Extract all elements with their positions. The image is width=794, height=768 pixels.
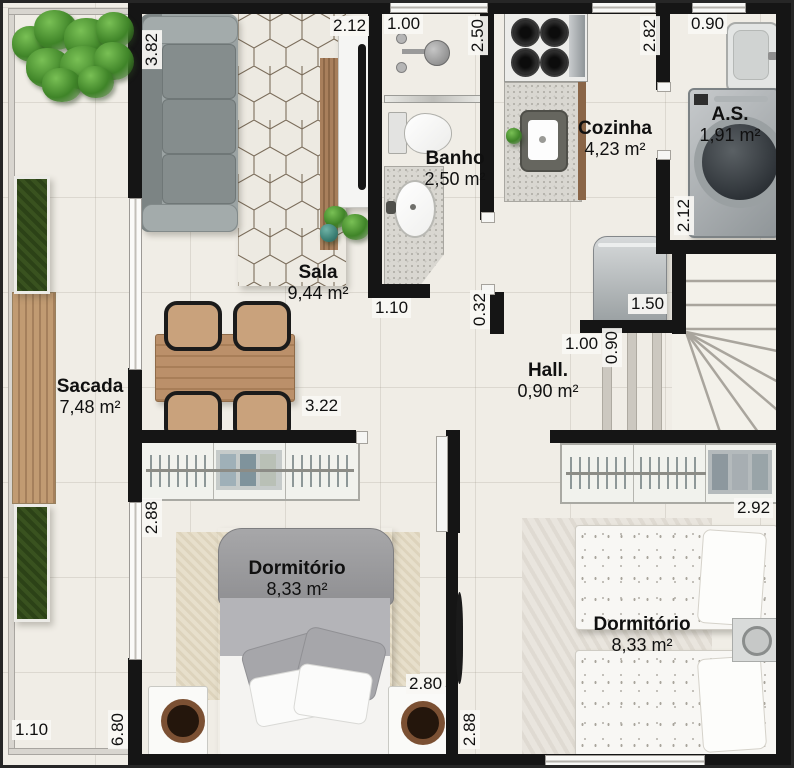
door-jamb-bedroom1 bbox=[356, 431, 368, 444]
clothes-stack bbox=[732, 454, 748, 490]
bed-pillow bbox=[697, 529, 767, 627]
tub-basin bbox=[733, 30, 769, 80]
bed-pillow bbox=[697, 655, 767, 753]
decor-bowl bbox=[401, 701, 445, 745]
wall bbox=[580, 320, 686, 333]
room-label-banho: Banho 2,50 m² bbox=[395, 148, 515, 189]
dimension-label: 6.80 bbox=[108, 710, 128, 749]
shower-valve bbox=[396, 33, 407, 44]
room-area: 7,48 m² bbox=[30, 397, 150, 417]
planter-box-lower bbox=[14, 504, 50, 622]
sink-faucet bbox=[539, 136, 546, 143]
shower-valve bbox=[396, 62, 407, 73]
burner bbox=[540, 18, 569, 47]
clothes-stack bbox=[752, 454, 768, 490]
door-leaf-bedroom1 bbox=[436, 436, 448, 532]
sofa-cushion bbox=[162, 44, 236, 99]
dimension-label: 2.12 bbox=[330, 16, 369, 36]
wall bbox=[128, 430, 356, 443]
window-bedroom1 bbox=[129, 502, 142, 660]
staircase bbox=[672, 254, 782, 432]
nightstand bbox=[388, 686, 448, 756]
room-name: Hall. bbox=[488, 360, 608, 381]
clothes-stack bbox=[712, 454, 728, 490]
sink-drain bbox=[410, 204, 416, 210]
dimension-label: 2.82 bbox=[640, 16, 660, 55]
room-name: A.S. bbox=[670, 104, 790, 125]
room-label-hall: Hall. 0,90 m² bbox=[488, 360, 608, 401]
decor-plant bbox=[342, 214, 370, 240]
wall bbox=[490, 292, 504, 334]
leaf-icon bbox=[42, 68, 82, 102]
room-area: 2,50 m² bbox=[395, 169, 515, 189]
potted-plant bbox=[12, 8, 134, 108]
room-label-as: A.S. 1,91 m² bbox=[670, 104, 790, 145]
wardrobe-bedroom1 bbox=[140, 441, 360, 501]
door-jamb-laundry bbox=[657, 82, 671, 92]
window-kitchen bbox=[592, 2, 656, 13]
wall bbox=[368, 8, 382, 298]
dimension-label: 2.50 bbox=[468, 16, 488, 55]
single-bed-bottom bbox=[575, 650, 778, 757]
burner bbox=[540, 48, 569, 77]
shower-head bbox=[424, 40, 450, 66]
dimension-label: 2.80 bbox=[406, 674, 445, 694]
room-area: 4,23 m² bbox=[555, 139, 675, 159]
door-jamb-bathroom bbox=[481, 212, 495, 223]
cooktop bbox=[504, 12, 588, 82]
dimension-label: 1.10 bbox=[12, 720, 51, 740]
door-leaf-bedroom2 bbox=[456, 592, 463, 684]
dimension-label: 0.32 bbox=[470, 290, 490, 329]
room-label-sacada: Sacada 7,48 m² bbox=[30, 376, 150, 417]
room-name: Sala bbox=[258, 262, 378, 283]
folded-clothes bbox=[708, 450, 772, 494]
burner bbox=[511, 48, 540, 77]
room-area: 0,90 m² bbox=[488, 381, 608, 401]
room-label-dormitorio1: Dormitório 8,33 m² bbox=[237, 558, 357, 599]
wardrobe-bedroom2 bbox=[560, 443, 780, 504]
room-name: Dormitório bbox=[237, 558, 357, 579]
shower-partition bbox=[384, 95, 482, 103]
stair-tread bbox=[627, 333, 637, 430]
dimension-label: 2.92 bbox=[734, 498, 773, 518]
burner bbox=[511, 18, 540, 47]
room-name: Cozinha bbox=[555, 118, 675, 139]
lamp bbox=[742, 626, 772, 656]
dining-chair bbox=[233, 301, 291, 351]
balcony-glass-door bbox=[129, 198, 142, 370]
room-name: Dormitório bbox=[582, 614, 702, 635]
washer-controls bbox=[714, 96, 768, 102]
room-area: 8,33 m² bbox=[237, 579, 357, 599]
planter-box-upper bbox=[14, 176, 50, 294]
fridge-door-edge bbox=[598, 243, 662, 247]
dimension-label: 2.12 bbox=[674, 196, 694, 235]
dimension-label: 1.00 bbox=[562, 334, 601, 354]
room-area: 8,33 m² bbox=[582, 635, 702, 655]
nightstand-lamp-table bbox=[732, 618, 778, 662]
decor-bowl bbox=[161, 699, 205, 743]
closet-rod bbox=[146, 469, 354, 472]
tv bbox=[358, 44, 366, 190]
wall bbox=[128, 658, 142, 768]
room-label-cozinha: Cozinha 4,23 m² bbox=[555, 118, 675, 159]
window-bathroom bbox=[390, 2, 488, 13]
dimension-label: 1.00 bbox=[384, 14, 423, 34]
room-area: 1,91 m² bbox=[670, 125, 790, 145]
nightstand bbox=[148, 686, 208, 756]
window-bedroom2 bbox=[545, 755, 705, 768]
window-laundry bbox=[692, 2, 746, 13]
sofa-cushion bbox=[162, 154, 236, 204]
room-label-sala: Sala 9,44 m² bbox=[258, 262, 378, 303]
dimension-label: 0.90 bbox=[602, 328, 622, 367]
dimension-label: 1.10 bbox=[372, 298, 411, 318]
cooktop-control-panel bbox=[569, 15, 585, 77]
room-area: 9,44 m² bbox=[258, 283, 378, 303]
vanity-faucet bbox=[386, 201, 396, 214]
dining-chair bbox=[164, 301, 222, 351]
room-name: Banho bbox=[395, 148, 515, 169]
dimension-label: 3.22 bbox=[302, 396, 341, 416]
wall bbox=[656, 240, 794, 254]
decor-plant bbox=[320, 224, 338, 242]
sofa-cushion bbox=[162, 99, 236, 154]
dimension-label: 3.82 bbox=[142, 30, 162, 69]
shower-arm bbox=[402, 49, 426, 54]
room-name: Sacada bbox=[30, 376, 150, 397]
leaf-icon bbox=[78, 66, 114, 98]
closet-rod bbox=[566, 472, 706, 475]
sofa-armrest-bottom bbox=[142, 204, 238, 232]
counter-plant bbox=[506, 128, 522, 144]
wall bbox=[446, 430, 460, 533]
dimension-label: 1.50 bbox=[628, 294, 667, 314]
room-label-dormitorio2: Dormitório 8,33 m² bbox=[582, 614, 702, 655]
wall bbox=[550, 430, 782, 443]
dimension-label: 2.88 bbox=[142, 498, 162, 537]
dimension-label: 2.88 bbox=[460, 710, 480, 749]
stair-tread bbox=[652, 333, 662, 430]
floor-plan: Sala 9,44 m² Banho 2,50 m² Cozinha 4,23 … bbox=[0, 0, 794, 768]
laundry-tub bbox=[726, 22, 780, 94]
dimension-label: 0.90 bbox=[688, 14, 727, 34]
